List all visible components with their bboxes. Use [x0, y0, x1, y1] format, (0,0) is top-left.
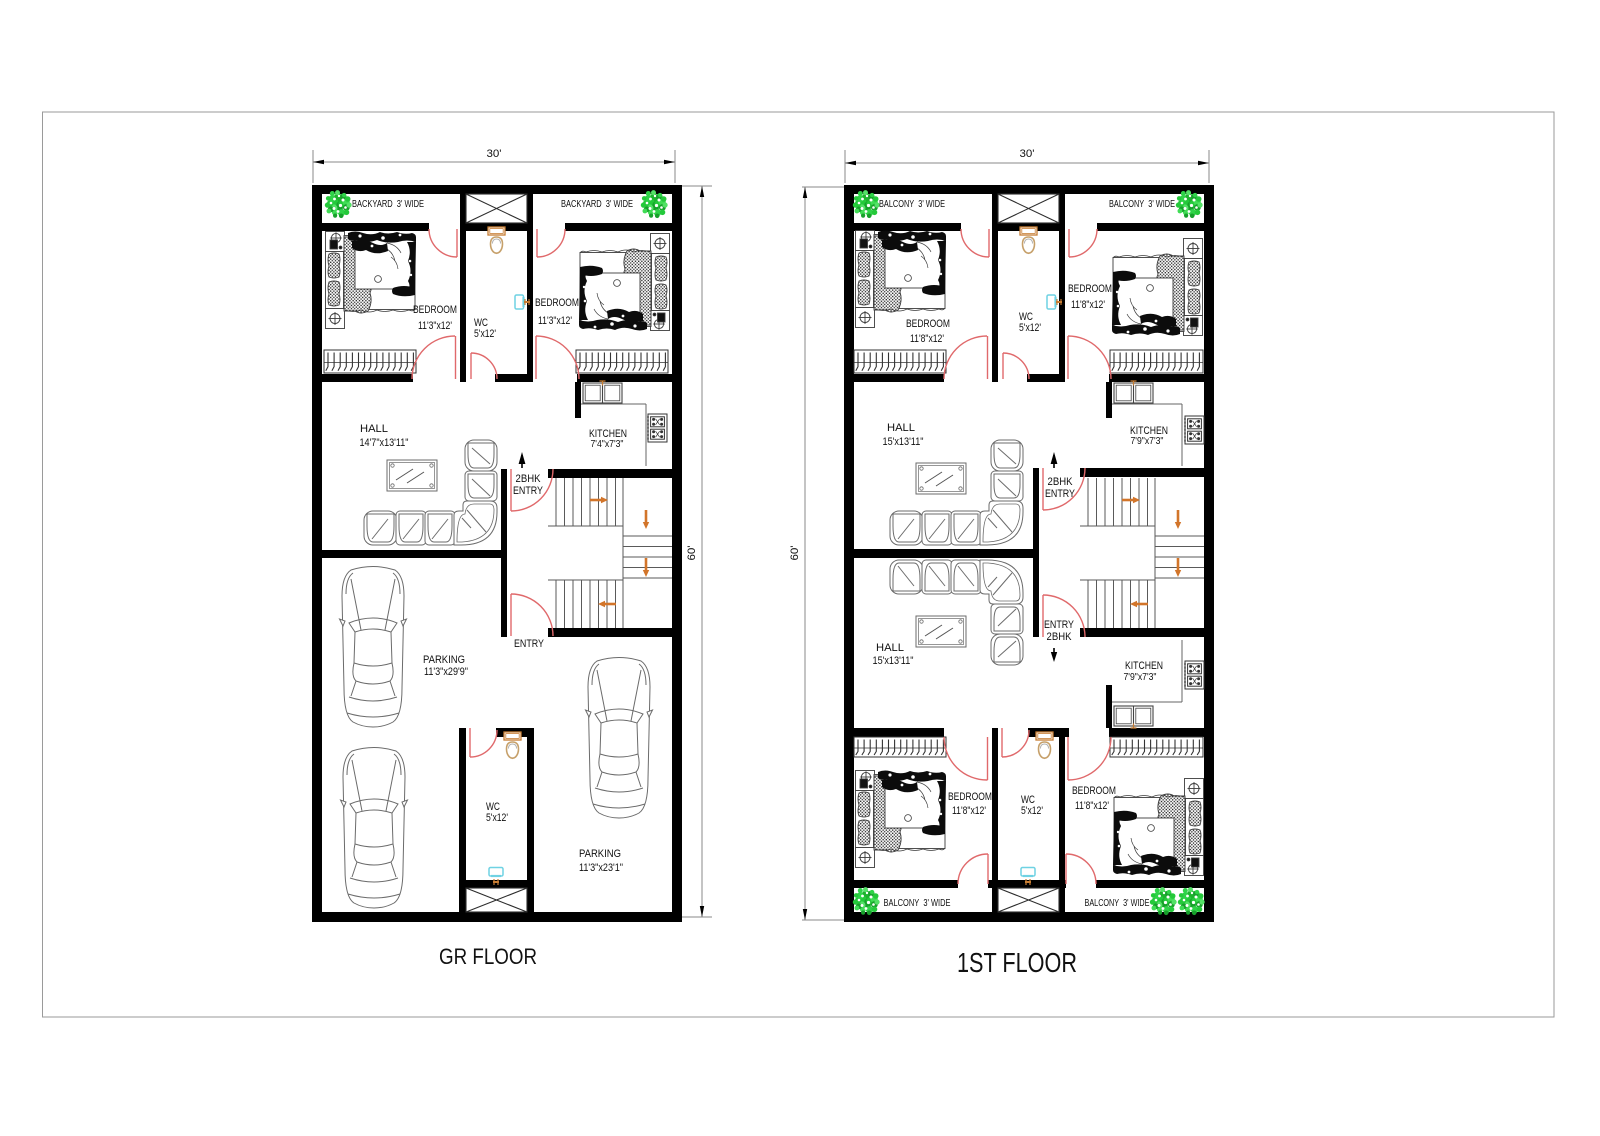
svg-text:11'8"x12': 11'8"x12': [910, 333, 944, 345]
svg-text:BALCONY 3' WIDE: BALCONY 3' WIDE: [1085, 898, 1150, 909]
svg-text:1ST FLOOR: 1ST FLOOR: [957, 947, 1077, 978]
svg-text:11'8"x12': 11'8"x12': [1071, 299, 1105, 311]
svg-text:PARKING: PARKING: [579, 848, 621, 860]
svg-text:7'9"x7'3": 7'9"x7'3": [1131, 436, 1164, 447]
svg-text:HALL: HALL: [360, 423, 388, 435]
svg-text:BACKYARD 3' WIDE: BACKYARD 3' WIDE: [561, 199, 633, 210]
svg-text:60': 60': [686, 546, 698, 561]
svg-text:7'4"x7'3": 7'4"x7'3": [591, 439, 624, 450]
svg-text:BALCONY 3' WIDE: BALCONY 3' WIDE: [879, 199, 945, 210]
svg-text:BEDROOM: BEDROOM: [906, 318, 950, 330]
svg-text:5'x12': 5'x12': [474, 328, 496, 340]
svg-text:5'x12': 5'x12': [486, 812, 508, 824]
svg-text:BEDROOM: BEDROOM: [535, 297, 579, 309]
svg-text:15'x13'11": 15'x13'11": [883, 436, 924, 448]
svg-text:11'3"x23'1": 11'3"x23'1": [579, 862, 623, 874]
svg-text:11'3"x12': 11'3"x12': [418, 320, 452, 332]
svg-text:11'3"x12': 11'3"x12': [538, 315, 572, 327]
svg-text:30': 30': [1020, 148, 1035, 160]
svg-text:2BHK: 2BHK: [1048, 476, 1074, 488]
svg-text:60': 60': [789, 546, 801, 561]
svg-text:BEDROOM: BEDROOM: [1068, 283, 1112, 295]
svg-text:PARKING: PARKING: [423, 654, 465, 666]
svg-text:5'x12': 5'x12': [1021, 805, 1043, 817]
svg-text:BEDROOM: BEDROOM: [1072, 785, 1116, 797]
svg-text:14'7"x13'11": 14'7"x13'11": [360, 437, 409, 449]
svg-text:2BHK: 2BHK: [516, 473, 542, 485]
svg-text:GR FLOOR: GR FLOOR: [439, 944, 537, 969]
svg-text:BALCONY 3' WIDE: BALCONY 3' WIDE: [1109, 199, 1175, 210]
svg-text:11'8"x12': 11'8"x12': [952, 805, 986, 817]
svg-text:ENTRY: ENTRY: [514, 638, 545, 650]
svg-text:15'x13'11": 15'x13'11": [873, 655, 914, 667]
svg-text:ENTRY: ENTRY: [513, 485, 544, 497]
svg-text:BALCONY 3' WIDE: BALCONY 3' WIDE: [884, 898, 951, 909]
svg-text:11'3"x29'9": 11'3"x29'9": [424, 666, 468, 678]
svg-text:KITCHEN: KITCHEN: [1125, 660, 1163, 672]
svg-text:ENTRY: ENTRY: [1045, 488, 1076, 500]
svg-text:11'8"x12': 11'8"x12': [1075, 800, 1109, 812]
svg-text:HALL: HALL: [876, 642, 904, 654]
svg-text:BEDROOM: BEDROOM: [948, 791, 992, 803]
svg-text:BEDROOM: BEDROOM: [413, 304, 457, 316]
svg-text:HALL: HALL: [887, 422, 915, 434]
svg-text:ENTRY: ENTRY: [1044, 619, 1075, 631]
svg-text:2BHK: 2BHK: [1047, 631, 1073, 643]
svg-text:BACKYARD 3' WIDE: BACKYARD 3' WIDE: [352, 199, 424, 210]
svg-text:30': 30': [487, 148, 502, 160]
svg-text:7'9"x7'3": 7'9"x7'3": [1124, 672, 1157, 683]
svg-text:5'x12': 5'x12': [1019, 322, 1041, 334]
